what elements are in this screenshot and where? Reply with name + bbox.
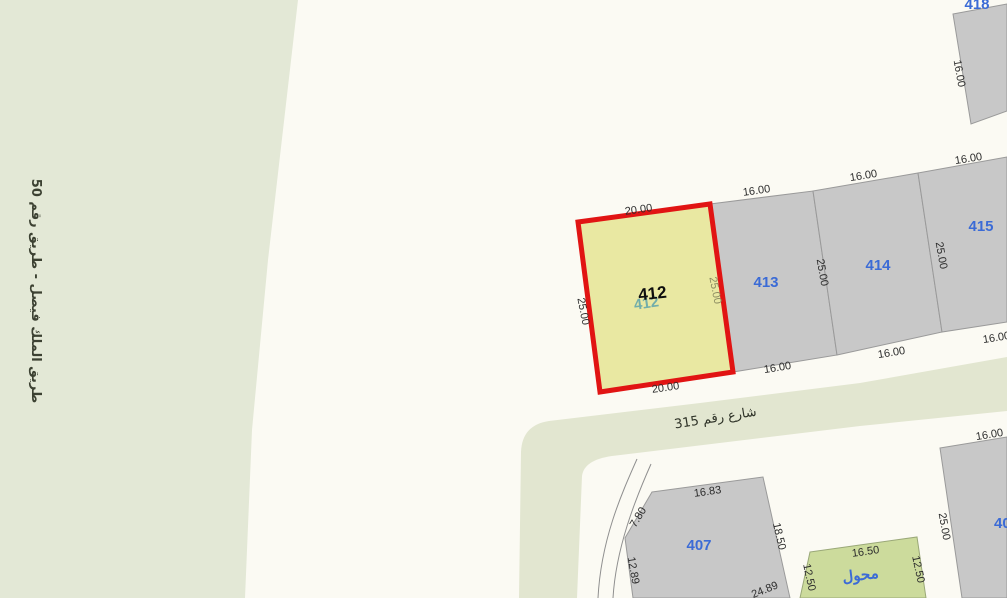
parcel-418-label: 418	[964, 0, 989, 13]
road-label-king-faisal: طريق الملك فيصل - طريق رقم 50	[28, 179, 43, 403]
parcel-415-label: 415	[968, 218, 993, 235]
cadastral-map-viewport[interactable]: طريق الملك فيصل - طريق رقم 50 شارع رقم 3…	[0, 0, 1007, 598]
parcel-40x-label: 40	[994, 515, 1007, 532]
map-canvas[interactable]: طريق الملك فيصل - طريق رقم 50 شارع رقم 3…	[0, 0, 1007, 598]
parcel-413-label: 413	[753, 274, 778, 291]
parcel-407-label: 407	[686, 537, 711, 554]
parcel-412-label: 412	[637, 283, 667, 305]
parcel-414-label: 414	[865, 257, 891, 274]
